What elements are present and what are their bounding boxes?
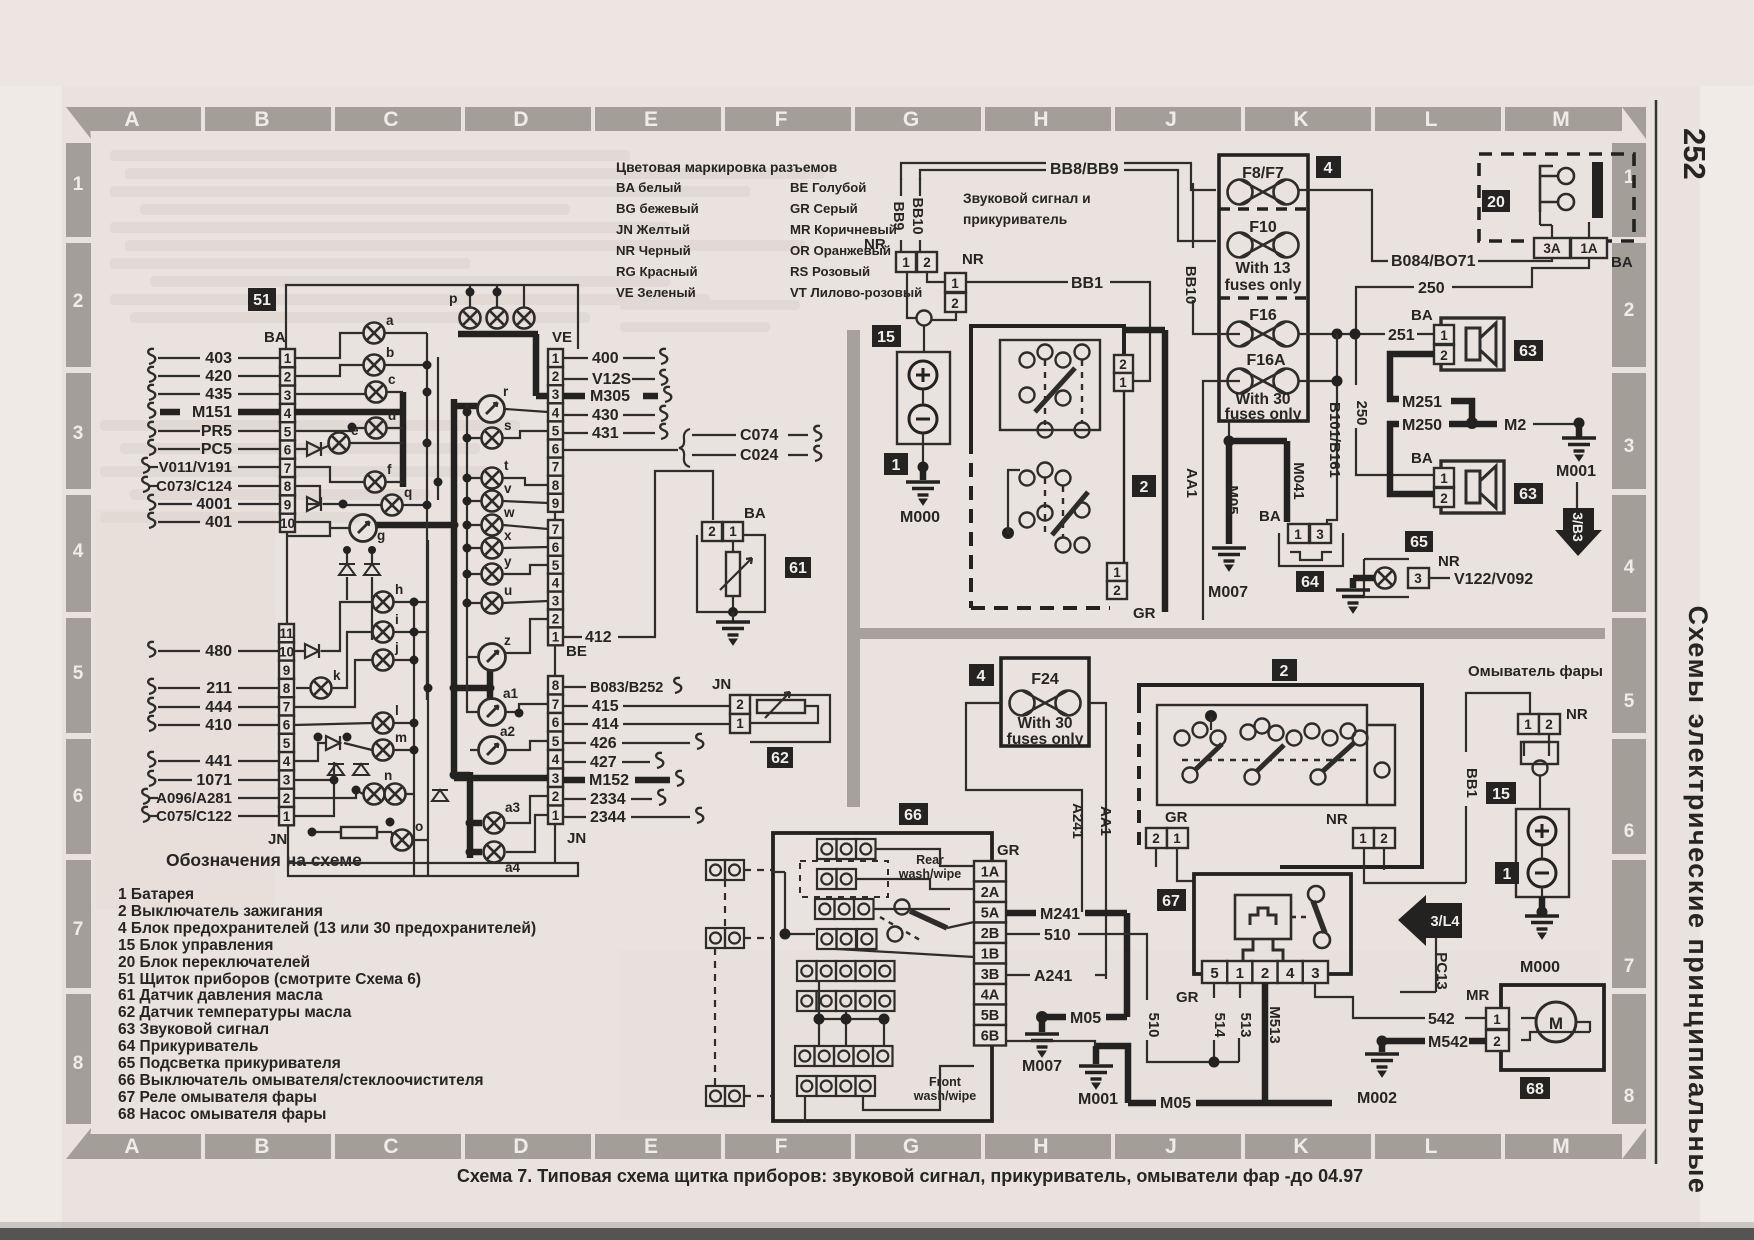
svg-text:PC5: PC5 bbox=[201, 441, 232, 458]
svg-text:68: 68 bbox=[1526, 1081, 1544, 1098]
svg-text:RS Розовый: RS Розовый bbox=[790, 264, 870, 279]
svg-text:M041: M041 bbox=[1290, 462, 1307, 500]
svg-text:GR Серый: GR Серый bbox=[790, 201, 858, 216]
svg-text:8: 8 bbox=[552, 678, 560, 693]
svg-text:A: A bbox=[124, 108, 139, 131]
svg-text:k: k bbox=[333, 668, 341, 683]
svg-text:10: 10 bbox=[279, 644, 294, 659]
svg-text:wash/wipe: wash/wipe bbox=[913, 1089, 977, 1103]
svg-text:прикуриватель: прикуриватель bbox=[963, 212, 1067, 227]
svg-text:2: 2 bbox=[1113, 583, 1121, 598]
svg-text:BA: BA bbox=[1411, 307, 1433, 324]
svg-text:430: 430 bbox=[592, 407, 619, 424]
svg-text:w: w bbox=[503, 505, 515, 520]
svg-text:7: 7 bbox=[552, 697, 560, 712]
svg-text:444: 444 bbox=[205, 699, 232, 716]
svg-text:1: 1 bbox=[1113, 565, 1121, 580]
svg-text:C075/C122: C075/C122 bbox=[156, 808, 232, 825]
svg-text:2334: 2334 bbox=[590, 791, 626, 808]
svg-text:542: 542 bbox=[1428, 1011, 1455, 1028]
svg-text:Обозначения на схеме: Обозначения на схеме bbox=[166, 850, 362, 870]
svg-text:BG бежевый: BG бежевый bbox=[616, 201, 699, 216]
svg-text:4: 4 bbox=[73, 541, 84, 562]
svg-text:5A: 5A bbox=[981, 906, 1000, 922]
svg-text:M151: M151 bbox=[192, 404, 232, 421]
svg-text:1 Батарея: 1 Батарея bbox=[118, 886, 194, 903]
svg-text:PR5: PR5 bbox=[201, 423, 232, 440]
svg-text:2: 2 bbox=[1545, 717, 1553, 732]
svg-text:a1: a1 bbox=[503, 686, 519, 701]
svg-text:BB8/BB9: BB8/BB9 bbox=[1050, 161, 1119, 178]
svg-text:M007: M007 bbox=[1208, 584, 1248, 601]
svg-text:fuses only: fuses only bbox=[1225, 277, 1302, 294]
svg-text:427: 427 bbox=[590, 754, 617, 771]
svg-text:v: v bbox=[504, 481, 512, 496]
svg-text:412: 412 bbox=[585, 629, 612, 646]
svg-text:5B: 5B bbox=[981, 1008, 1000, 1024]
svg-text:1: 1 bbox=[283, 809, 291, 824]
svg-text:V011/V191: V011/V191 bbox=[159, 459, 232, 476]
svg-text:BA: BA bbox=[1611, 254, 1633, 271]
svg-text:15: 15 bbox=[877, 329, 895, 346]
svg-text:u: u bbox=[504, 583, 512, 598]
svg-text:i: i bbox=[395, 612, 399, 627]
svg-text:n: n bbox=[384, 768, 392, 783]
svg-text:4: 4 bbox=[284, 406, 292, 421]
svg-text:M542: M542 bbox=[1428, 1034, 1468, 1051]
svg-text:V122/V092: V122/V092 bbox=[1454, 571, 1533, 588]
svg-text:1: 1 bbox=[1173, 831, 1181, 846]
svg-text:MR Коричневый: MR Коричневый bbox=[790, 222, 897, 237]
svg-text:1: 1 bbox=[284, 351, 292, 366]
svg-text:F8/F7: F8/F7 bbox=[1242, 165, 1284, 182]
svg-text:2: 2 bbox=[552, 369, 560, 384]
svg-text:15: 15 bbox=[1492, 786, 1510, 803]
svg-text:C073/C124: C073/C124 bbox=[156, 478, 233, 495]
svg-text:63: 63 bbox=[1519, 486, 1537, 503]
svg-text:L: L bbox=[1425, 1135, 1438, 1158]
svg-text:3: 3 bbox=[552, 594, 560, 609]
svg-text:BA: BA bbox=[744, 505, 766, 522]
svg-text:M2: M2 bbox=[1504, 417, 1526, 434]
svg-text:2: 2 bbox=[951, 296, 959, 311]
svg-text:5: 5 bbox=[552, 734, 560, 749]
svg-text:JN: JN bbox=[567, 830, 586, 847]
svg-text:64: 64 bbox=[1301, 574, 1319, 591]
svg-text:C: C bbox=[383, 1135, 398, 1158]
svg-text:BB1: BB1 bbox=[1071, 275, 1103, 292]
svg-text:B083/B252: B083/B252 bbox=[590, 680, 663, 696]
svg-text:1: 1 bbox=[552, 351, 560, 366]
svg-text:d: d bbox=[388, 408, 396, 423]
svg-text:8: 8 bbox=[552, 478, 560, 493]
svg-text:D: D bbox=[513, 1135, 528, 1158]
svg-text:GR: GR bbox=[1165, 809, 1188, 826]
svg-text:431: 431 bbox=[592, 425, 619, 442]
svg-text:g: g bbox=[377, 528, 385, 543]
svg-text:6: 6 bbox=[283, 718, 291, 733]
svg-text:8: 8 bbox=[1624, 1086, 1635, 1107]
svg-text:M05: M05 bbox=[1160, 1095, 1191, 1112]
svg-text:VE: VE bbox=[552, 329, 572, 346]
svg-text:3: 3 bbox=[283, 773, 291, 788]
svg-text:NR Черный: NR Черный bbox=[616, 243, 691, 258]
svg-text:5: 5 bbox=[1210, 965, 1218, 982]
svg-text:2: 2 bbox=[923, 255, 931, 270]
svg-text:1: 1 bbox=[1359, 831, 1367, 846]
svg-text:AA1: AA1 bbox=[1183, 468, 1200, 498]
svg-text:C074: C074 bbox=[740, 427, 778, 444]
svg-text:M250: M250 bbox=[1402, 417, 1442, 434]
svg-text:1: 1 bbox=[1440, 328, 1448, 343]
svg-text:M152: M152 bbox=[589, 772, 629, 789]
svg-text:1: 1 bbox=[729, 524, 737, 539]
svg-text:a2: a2 bbox=[500, 724, 515, 739]
svg-text:2: 2 bbox=[552, 789, 560, 804]
svg-text:2: 2 bbox=[283, 791, 291, 806]
svg-text:1: 1 bbox=[902, 255, 910, 270]
svg-text:7: 7 bbox=[552, 522, 560, 537]
svg-text:2: 2 bbox=[736, 697, 744, 712]
svg-text:1: 1 bbox=[1440, 471, 1448, 486]
svg-text:3: 3 bbox=[552, 387, 560, 402]
svg-text:z: z bbox=[504, 633, 511, 648]
svg-text:J: J bbox=[1165, 1135, 1177, 1158]
svg-text:H: H bbox=[1033, 108, 1048, 131]
svg-text:Схемы электрические принципиал: Схемы электрические принципиальные bbox=[1683, 606, 1713, 1195]
svg-text:67: 67 bbox=[1162, 893, 1180, 910]
svg-text:441: 441 bbox=[205, 753, 232, 770]
svg-text:Схема 7. Типовая схема щитка п: Схема 7. Типовая схема щитка приборов: з… bbox=[457, 1166, 1363, 1186]
svg-text:B: B bbox=[254, 108, 269, 131]
svg-text:p: p bbox=[449, 290, 458, 306]
svg-text:2: 2 bbox=[708, 524, 716, 539]
svg-text:F16: F16 bbox=[1249, 307, 1277, 324]
svg-text:4 Блок предохранителей (13 или: 4 Блок предохранителей (13 или 30 предох… bbox=[118, 920, 536, 937]
svg-text:J: J bbox=[1165, 108, 1177, 131]
svg-text:2: 2 bbox=[1440, 348, 1448, 363]
svg-text:With 13: With 13 bbox=[1236, 260, 1291, 277]
svg-text:M: M bbox=[1549, 1014, 1563, 1033]
svg-text:3: 3 bbox=[284, 388, 292, 403]
svg-text:4: 4 bbox=[552, 752, 560, 767]
svg-text:NR: NR bbox=[962, 251, 984, 268]
svg-text:M05: M05 bbox=[1070, 1010, 1101, 1027]
svg-text:M241: M241 bbox=[1040, 906, 1080, 923]
svg-text:BB10: BB10 bbox=[1182, 266, 1199, 304]
svg-text:410: 410 bbox=[205, 717, 232, 734]
svg-text:51 Щиток приборов (смотрите Сх: 51 Щиток приборов (смотрите Схема 6) bbox=[118, 971, 421, 988]
svg-text:2: 2 bbox=[1261, 965, 1269, 982]
svg-text:15 Блок управления: 15 Блок управления bbox=[118, 937, 273, 954]
svg-text:2: 2 bbox=[552, 612, 560, 627]
svg-text:JN Желтый: JN Желтый bbox=[616, 222, 690, 237]
svg-text:NR: NR bbox=[1326, 811, 1348, 828]
svg-text:l: l bbox=[395, 703, 399, 718]
svg-text:7: 7 bbox=[284, 461, 292, 476]
svg-text:1B: 1B bbox=[981, 947, 1000, 963]
svg-text:PC13: PC13 bbox=[1433, 952, 1450, 990]
svg-text:M305: M305 bbox=[590, 388, 630, 405]
svg-text:420: 420 bbox=[205, 368, 232, 385]
svg-text:62 Датчик температуры масла: 62 Датчик температуры масла bbox=[118, 1004, 352, 1021]
svg-text:K: K bbox=[1293, 1135, 1308, 1158]
svg-text:M002: M002 bbox=[1357, 1090, 1397, 1107]
svg-text:250: 250 bbox=[1353, 400, 1370, 425]
svg-text:5: 5 bbox=[1624, 691, 1635, 712]
svg-text:GR: GR bbox=[1176, 989, 1199, 1006]
svg-text:a: a bbox=[386, 313, 394, 328]
svg-text:G: G bbox=[903, 108, 919, 131]
svg-text:11: 11 bbox=[279, 626, 294, 641]
svg-text:1: 1 bbox=[1119, 375, 1127, 390]
svg-text:M000: M000 bbox=[1520, 959, 1560, 976]
svg-text:415: 415 bbox=[592, 698, 619, 715]
svg-text:H: H bbox=[1033, 1135, 1048, 1158]
svg-text:66 Выключатель омывателя/стекл: 66 Выключатель омывателя/стеклоочистител… bbox=[118, 1072, 484, 1089]
svg-text:435: 435 bbox=[205, 386, 232, 403]
svg-text:MR: MR bbox=[1466, 987, 1489, 1004]
svg-text:10: 10 bbox=[280, 516, 295, 531]
svg-text:5: 5 bbox=[552, 423, 560, 438]
svg-text:h: h bbox=[395, 582, 403, 597]
svg-text:2: 2 bbox=[1440, 491, 1448, 506]
svg-text:BA белый: BA белый bbox=[616, 180, 681, 195]
svg-text:2: 2 bbox=[73, 291, 84, 312]
svg-text:Front: Front bbox=[929, 1075, 962, 1089]
svg-text:j: j bbox=[394, 640, 399, 655]
svg-text:6: 6 bbox=[1624, 821, 1635, 842]
svg-text:4: 4 bbox=[283, 754, 291, 769]
svg-text:4: 4 bbox=[1324, 160, 1333, 177]
svg-text:513: 513 bbox=[1237, 1012, 1254, 1037]
svg-text:1: 1 bbox=[1493, 1012, 1501, 1027]
svg-text:C: C bbox=[383, 108, 398, 131]
svg-text:F16A: F16A bbox=[1246, 352, 1286, 369]
svg-text:F10: F10 bbox=[1249, 219, 1277, 236]
svg-text:a3: a3 bbox=[505, 800, 521, 815]
svg-text:M001: M001 bbox=[1556, 463, 1596, 480]
svg-text:2: 2 bbox=[1140, 479, 1149, 496]
svg-text:4: 4 bbox=[1624, 557, 1635, 578]
svg-text:250: 250 bbox=[1418, 280, 1445, 297]
svg-text:E: E bbox=[644, 108, 658, 131]
svg-text:4: 4 bbox=[552, 405, 560, 420]
svg-text:2B: 2B bbox=[981, 926, 1000, 942]
svg-text:63 Звуковой сигнал: 63 Звуковой сигнал bbox=[118, 1021, 269, 1038]
svg-text:E: E bbox=[644, 1135, 658, 1158]
svg-text:BB1: BB1 bbox=[1463, 768, 1480, 798]
svg-text:b: b bbox=[386, 345, 394, 360]
svg-text:BA: BA bbox=[1259, 508, 1281, 525]
svg-text:A096/A281: A096/A281 bbox=[156, 790, 232, 807]
svg-text:5: 5 bbox=[552, 558, 560, 573]
svg-text:M: M bbox=[1552, 108, 1570, 131]
svg-text:Звуковой сигнал и: Звуковой сигнал и bbox=[963, 191, 1091, 206]
svg-text:4: 4 bbox=[552, 576, 560, 591]
svg-text:2: 2 bbox=[284, 369, 292, 384]
svg-text:66: 66 bbox=[904, 807, 922, 824]
svg-text:NR: NR bbox=[1438, 553, 1460, 570]
svg-text:y: y bbox=[504, 554, 512, 569]
svg-text:4001: 4001 bbox=[196, 496, 232, 513]
svg-text:A241: A241 bbox=[1069, 803, 1086, 839]
svg-text:VT Лилово-розовый: VT Лилово-розовый bbox=[790, 285, 922, 300]
svg-text:68 Насос омывателя фары: 68 Насос омывателя фары bbox=[118, 1106, 326, 1123]
svg-text:7: 7 bbox=[1624, 956, 1635, 977]
svg-text:2 Выключатель зажигания: 2 Выключатель зажигания bbox=[118, 903, 323, 920]
svg-text:With 30: With 30 bbox=[1018, 715, 1073, 732]
svg-text:1: 1 bbox=[951, 276, 959, 291]
svg-text:s: s bbox=[504, 418, 512, 433]
svg-text:64 Прикуриватель: 64 Прикуриватель bbox=[118, 1038, 258, 1055]
svg-text:4: 4 bbox=[1286, 965, 1295, 982]
svg-text:400: 400 bbox=[592, 350, 619, 367]
svg-text:3B: 3B bbox=[981, 967, 1000, 983]
svg-text:6: 6 bbox=[552, 540, 560, 555]
svg-text:NR: NR bbox=[864, 236, 886, 253]
svg-text:Цветовая маркировка разъемов: Цветовая маркировка разъемов bbox=[616, 160, 837, 175]
svg-text:3/B3: 3/B3 bbox=[1570, 512, 1586, 542]
svg-text:2A: 2A bbox=[981, 885, 1000, 901]
svg-text:M251: M251 bbox=[1402, 394, 1442, 411]
svg-text:1: 1 bbox=[1294, 527, 1302, 542]
svg-text:B084/BO71: B084/BO71 bbox=[1391, 253, 1476, 270]
svg-text:1071: 1071 bbox=[196, 772, 232, 789]
svg-text:M000: M000 bbox=[900, 509, 940, 526]
svg-text:5: 5 bbox=[73, 663, 84, 684]
svg-text:1: 1 bbox=[736, 716, 744, 731]
svg-text:o: o bbox=[415, 819, 423, 834]
svg-text:510: 510 bbox=[1044, 927, 1071, 944]
svg-text:211: 211 bbox=[206, 680, 232, 697]
svg-text:r: r bbox=[503, 384, 509, 399]
svg-text:B101/B161: B101/B161 bbox=[1326, 402, 1343, 478]
svg-text:F: F bbox=[775, 108, 788, 131]
svg-text:6B: 6B bbox=[981, 1029, 1000, 1045]
svg-text:65: 65 bbox=[1410, 534, 1428, 551]
svg-text:401: 401 bbox=[205, 514, 232, 531]
svg-text:M513: M513 bbox=[1266, 1006, 1283, 1044]
svg-text:1A: 1A bbox=[981, 865, 1000, 881]
svg-text:2: 2 bbox=[1119, 357, 1127, 372]
svg-text:x: x bbox=[504, 528, 512, 543]
svg-text:VE Зеленый: VE Зеленый bbox=[616, 285, 696, 300]
svg-text:8: 8 bbox=[284, 479, 292, 494]
svg-text:C024: C024 bbox=[740, 447, 778, 464]
svg-text:480: 480 bbox=[205, 643, 232, 660]
svg-text:t: t bbox=[504, 458, 509, 473]
svg-text:3: 3 bbox=[552, 771, 560, 786]
svg-text:2: 2 bbox=[1624, 300, 1635, 321]
svg-text:8: 8 bbox=[73, 1053, 84, 1074]
svg-text:A: A bbox=[124, 1135, 139, 1158]
svg-text:GR: GR bbox=[1133, 605, 1156, 622]
svg-text:20 Блок переключателей: 20 Блок переключателей bbox=[118, 954, 310, 971]
svg-text:3: 3 bbox=[1316, 527, 1324, 542]
svg-text:514: 514 bbox=[1211, 1012, 1228, 1038]
svg-text:20: 20 bbox=[1487, 194, 1505, 211]
svg-text:510: 510 bbox=[1145, 1012, 1162, 1037]
svg-text:252: 252 bbox=[1677, 128, 1712, 180]
svg-text:61: 61 bbox=[789, 560, 807, 577]
svg-text:M05: M05 bbox=[1224, 485, 1241, 514]
svg-text:7: 7 bbox=[73, 919, 84, 940]
svg-text:9: 9 bbox=[552, 496, 560, 511]
svg-text:2: 2 bbox=[1280, 663, 1289, 680]
svg-text:4: 4 bbox=[977, 668, 986, 685]
svg-text:JN: JN bbox=[268, 831, 287, 848]
svg-text:Омыватель фары: Омыватель фары bbox=[1468, 663, 1603, 680]
svg-text:fuses only: fuses only bbox=[1225, 406, 1302, 423]
svg-text:3: 3 bbox=[73, 423, 84, 444]
svg-text:f: f bbox=[387, 462, 392, 477]
svg-text:1: 1 bbox=[1236, 965, 1244, 982]
svg-text:9: 9 bbox=[283, 663, 291, 678]
svg-text:1: 1 bbox=[1524, 717, 1532, 732]
svg-text:JN: JN bbox=[712, 676, 731, 693]
svg-text:BB9: BB9 bbox=[890, 201, 906, 230]
svg-text:BE: BE bbox=[566, 643, 587, 660]
svg-text:M001: M001 bbox=[1078, 1091, 1118, 1108]
svg-text:K: K bbox=[1293, 108, 1308, 131]
svg-text:63: 63 bbox=[1519, 343, 1537, 360]
svg-text:5: 5 bbox=[284, 424, 292, 439]
svg-text:403: 403 bbox=[205, 350, 232, 367]
svg-text:1: 1 bbox=[1503, 866, 1512, 883]
svg-text:a4: a4 bbox=[505, 860, 521, 875]
svg-text:1A: 1A bbox=[1580, 241, 1598, 256]
svg-text:1: 1 bbox=[892, 457, 901, 474]
svg-text:m: m bbox=[395, 730, 407, 745]
svg-text:1: 1 bbox=[552, 808, 560, 823]
svg-text:5: 5 bbox=[283, 736, 291, 751]
svg-text:AA1: AA1 bbox=[1097, 806, 1114, 836]
svg-text:F: F bbox=[775, 1135, 788, 1158]
svg-text:3: 3 bbox=[1624, 436, 1635, 457]
svg-text:6: 6 bbox=[284, 443, 292, 458]
svg-text:2344: 2344 bbox=[590, 809, 626, 826]
svg-text:67 Реле омывателя фары: 67 Реле омывателя фары bbox=[118, 1089, 317, 1106]
svg-text:3/L4: 3/L4 bbox=[1430, 914, 1459, 930]
svg-text:GR: GR bbox=[997, 842, 1020, 859]
svg-text:3A: 3A bbox=[1543, 241, 1561, 256]
svg-text:fuses only: fuses only bbox=[1007, 731, 1084, 748]
svg-text:62: 62 bbox=[771, 750, 789, 767]
svg-text:426: 426 bbox=[590, 735, 617, 752]
svg-text:6: 6 bbox=[552, 442, 560, 457]
svg-text:2: 2 bbox=[1493, 1034, 1501, 1049]
svg-text:65 Подсветка прикуривателя: 65 Подсветка прикуривателя bbox=[118, 1055, 341, 1072]
svg-text:4A: 4A bbox=[981, 988, 1000, 1004]
svg-text:L: L bbox=[1425, 108, 1438, 131]
svg-text:7: 7 bbox=[552, 460, 560, 475]
svg-text:c: c bbox=[388, 372, 396, 387]
svg-text:BA: BA bbox=[264, 329, 286, 346]
svg-text:NR: NR bbox=[1566, 706, 1588, 723]
svg-text:2: 2 bbox=[1380, 831, 1388, 846]
svg-text:BB10: BB10 bbox=[909, 197, 925, 234]
svg-text:3: 3 bbox=[1414, 571, 1422, 586]
svg-text:F24: F24 bbox=[1031, 671, 1059, 688]
svg-text:M: M bbox=[1552, 1135, 1570, 1158]
svg-text:1: 1 bbox=[73, 174, 84, 195]
svg-text:251: 251 bbox=[1388, 327, 1415, 344]
svg-text:2: 2 bbox=[1152, 831, 1160, 846]
svg-text:1: 1 bbox=[552, 629, 560, 644]
svg-text:A241: A241 bbox=[1034, 968, 1072, 985]
svg-text:G: G bbox=[903, 1135, 919, 1158]
